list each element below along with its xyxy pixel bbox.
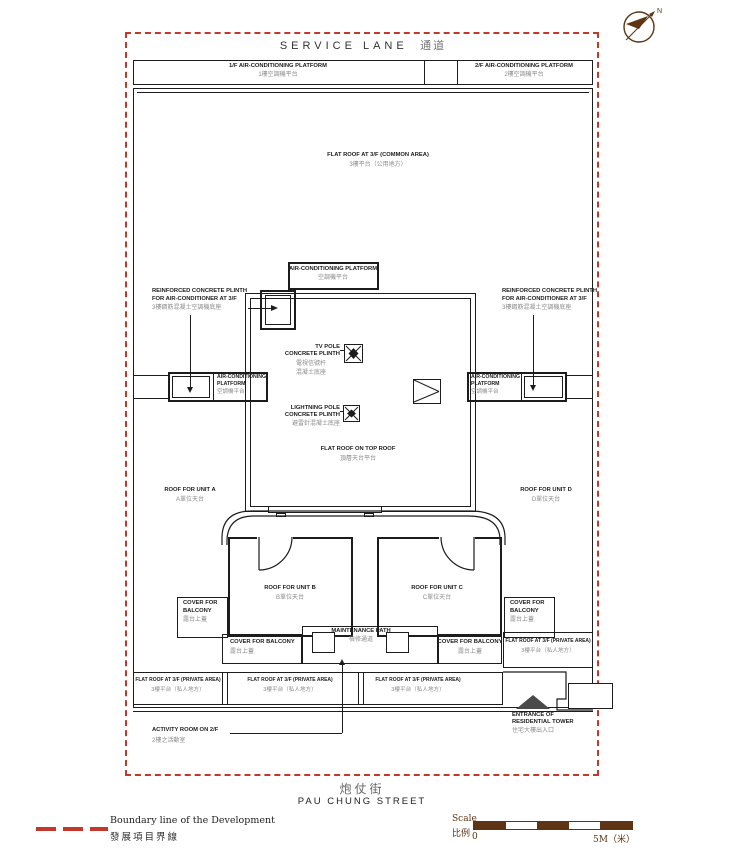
- private-flat-roof-label-2: FLAT ROOF AT 3/F (PRIVATE AREA): [247, 677, 332, 683]
- maintenance-path-label: MAINTENANCE PATH: [331, 628, 390, 635]
- tv-pole-label2: CONCRETE PLINTH: [268, 351, 340, 358]
- ac-platform-east-label2: PLATFORM: [471, 381, 499, 388]
- cover-balcony-east-label2: BALCONY: [510, 608, 539, 615]
- wall-line: [363, 672, 364, 705]
- roof-unit-c-label-zh: C單位天台: [423, 595, 451, 602]
- cover-balcony-southeast-label: COVER FOR BALCONY: [438, 639, 503, 646]
- legend-boundary-sample: [36, 827, 108, 831]
- service-lane-zh: 通道: [420, 40, 446, 52]
- plinth-callout-right-zh: 3樓鋼筋混凝土空調機底座: [502, 305, 571, 312]
- top-roof-label: FLAT ROOF ON TOP ROOF: [321, 446, 396, 453]
- cover-balcony-east-label-zh: 露台上蓋: [510, 617, 534, 624]
- private-flat-roof-east-label: FLAT ROOF AT 3/F (PRIVATE AREA): [505, 638, 590, 644]
- ac-platform-west-label1: AIR-CONDITIONING: [217, 374, 266, 381]
- flat-roof-common-label-zh: 3樓平台（公用地方）: [349, 162, 406, 169]
- street-name-zh: 炮仗街: [339, 780, 384, 797]
- street-name-en: PAU CHUNG STREET: [298, 796, 426, 807]
- ac-platform-top-label: AIR-CONDITIONING PLATFORM: [289, 266, 377, 273]
- roof-unit-d-label-zh: D單位天台: [532, 497, 560, 504]
- roof-unit-a-label: ROOF FOR UNIT A: [164, 487, 215, 494]
- scale-zero-label: 0: [472, 832, 478, 842]
- cover-balcony-west-label1: COVER FOR: [183, 600, 217, 607]
- strip-divider-line: [457, 61, 458, 84]
- wall-line: [227, 672, 228, 705]
- scale-segment: [600, 822, 632, 829]
- activity-room-label-zh: 2樓之活動室: [152, 738, 185, 745]
- private-flat-roof-label-1: FLAT ROOF AT 3/F (PRIVATE AREA): [135, 677, 220, 683]
- ac-platform-2f-label: 2/F AIR-CONDITIONING PLATFORM: [475, 63, 573, 70]
- scale-max-label: 5M（米）: [593, 832, 635, 845]
- plinth-callout-left-line2: FOR AIR-CONDITIONER AT 3/F: [152, 296, 237, 303]
- leader-line: [230, 733, 342, 734]
- roof-unit-d-label: ROOF FOR UNIT D: [520, 487, 572, 494]
- entrance-label-zh: 住宅大樓出入口: [512, 728, 554, 735]
- leader-line: [248, 308, 274, 309]
- wall-line: [213, 373, 214, 401]
- scale-label-zh: 比例: [452, 826, 470, 839]
- pedestal-foot: [364, 513, 374, 517]
- legend-boundary-label-zh: 發展項目界線: [110, 829, 179, 843]
- cover-balcony-southeast-label-zh: 露台上蓋: [458, 649, 482, 656]
- scale-segment: [537, 822, 569, 829]
- plinth-callout-left-zh: 3樓鋼筋混凝土空調機底座: [152, 305, 221, 312]
- site-plan-canvas: N SERVICE LANE 通道 1/F AIR-CONDITIONING P…: [0, 0, 730, 856]
- private-flat-roof-label-2-zh: 3樓平台（私人地方）: [263, 687, 316, 694]
- private-flat-roof-east-label-zh: 3樓平台（私人地方）: [521, 648, 574, 655]
- private-flat-roof-label-3-zh: 3樓平台（私人地方）: [391, 687, 444, 694]
- wall-line: [565, 375, 593, 376]
- cover-balcony-west-label-zh: 露台上蓋: [183, 617, 207, 624]
- plinth-callout-right-line1: REINFORCED CONCRETE PLINTH: [502, 288, 597, 295]
- boundary-crossing-structure: [568, 683, 613, 709]
- ac-plinth-west: [172, 376, 210, 398]
- scale-segment: [569, 822, 600, 829]
- concrete-plinth-inner: [265, 295, 291, 325]
- ac-platform-west-label-zh: 空調機平台: [217, 389, 245, 396]
- maintenance-path-label-zh: 檢修通道: [349, 637, 373, 644]
- entrance-label2: RESIDENTIAL TOWER: [512, 719, 574, 726]
- cover-balcony-east-label1: COVER FOR: [510, 600, 544, 607]
- roof-unit-c-label: ROOF FOR UNIT C: [411, 585, 463, 592]
- tv-pole-label-zh2: 混凝土底座: [296, 370, 326, 377]
- wall-line: [521, 373, 522, 401]
- leader-line: [340, 411, 343, 412]
- top-roof-label-zh: 頂層天台平台: [340, 456, 376, 463]
- wall-line: [222, 672, 223, 705]
- private-flat-roof-label-1-zh: 3樓平台（私人地方）: [151, 687, 204, 694]
- pedestal-foot: [276, 513, 286, 517]
- door-opening: [439, 534, 475, 541]
- door-opening: [257, 534, 293, 541]
- lightning-pole-label-zh: 避雷針混凝土底座: [292, 421, 340, 428]
- service-lane-en: SERVICE LANE: [280, 40, 408, 52]
- legend-boundary-label-en: Boundary line of the Development: [110, 815, 275, 826]
- cover-balcony-west-label2: BALCONY: [183, 608, 212, 615]
- plinth-callout-right-line2: FOR AIR-CONDITIONER AT 3/F: [502, 296, 587, 303]
- ac-platform-1f-label: 1/F AIR-CONDITIONING PLATFORM: [229, 63, 327, 70]
- cover-balcony-southwest-label: COVER FOR BALCONY: [230, 639, 295, 646]
- scale-segment: [474, 822, 506, 829]
- tv-pole-plinth-symbol: [344, 344, 363, 363]
- roof-unit-a-label-zh: A單位天台: [176, 497, 204, 504]
- leader-line: [342, 662, 343, 733]
- wall-line: [133, 375, 168, 376]
- service-lane-label: SERVICE LANE 通道: [133, 36, 593, 54]
- roof-unit-b-label-zh: B單位天台: [276, 595, 304, 602]
- roof-unit-b-label: ROOF FOR UNIT B: [264, 585, 316, 592]
- activity-room-label: ACTIVITY ROOM ON 2/F: [152, 727, 218, 734]
- cover-balcony-southwest-label-zh: 露台上蓋: [230, 649, 254, 656]
- wall-line: [133, 398, 168, 399]
- private-flat-roof-label-3: FLAT ROOF AT 3/F (PRIVATE AREA): [375, 677, 460, 683]
- compass-north-label: N: [657, 8, 662, 15]
- ac-platform-west-label2: PLATFORM: [217, 381, 245, 388]
- ac-plinth-east: [524, 376, 563, 398]
- north-compass-icon: N: [616, 2, 668, 48]
- lightning-pole-plinth-symbol: [343, 405, 360, 422]
- leader-line: [340, 350, 344, 351]
- ac-platform-east-label-zh: 空調機平台: [471, 389, 499, 396]
- building-inner-line: [137, 92, 589, 93]
- flat-roof-common-label: FLAT ROOF AT 3/F (COMMON AREA): [327, 152, 429, 159]
- scale-bar: [473, 821, 633, 830]
- wall-line: [358, 672, 359, 705]
- ac-platform-top-label-zh: 空調機平台: [318, 275, 348, 282]
- roof-feature-symbol: [413, 379, 441, 404]
- ac-platform-east-label1: AIR-CONDITIONING: [471, 374, 520, 381]
- pedestal: [268, 506, 382, 513]
- wall-line: [565, 398, 593, 399]
- lightning-pole-label2: CONCRETE PLINTH: [268, 412, 340, 419]
- scale-segment: [506, 822, 537, 829]
- ac-platform-1f-label-zh: 1樓空調機平台: [258, 72, 297, 79]
- ac-platform-2f-label-zh: 2樓空調機平台: [504, 72, 543, 79]
- tv-pole-label-zh1: 電視信號杆: [296, 361, 326, 368]
- plinth-callout-left-line1: REINFORCED CONCRETE PLINTH: [152, 288, 247, 295]
- strip-divider-line: [424, 61, 425, 84]
